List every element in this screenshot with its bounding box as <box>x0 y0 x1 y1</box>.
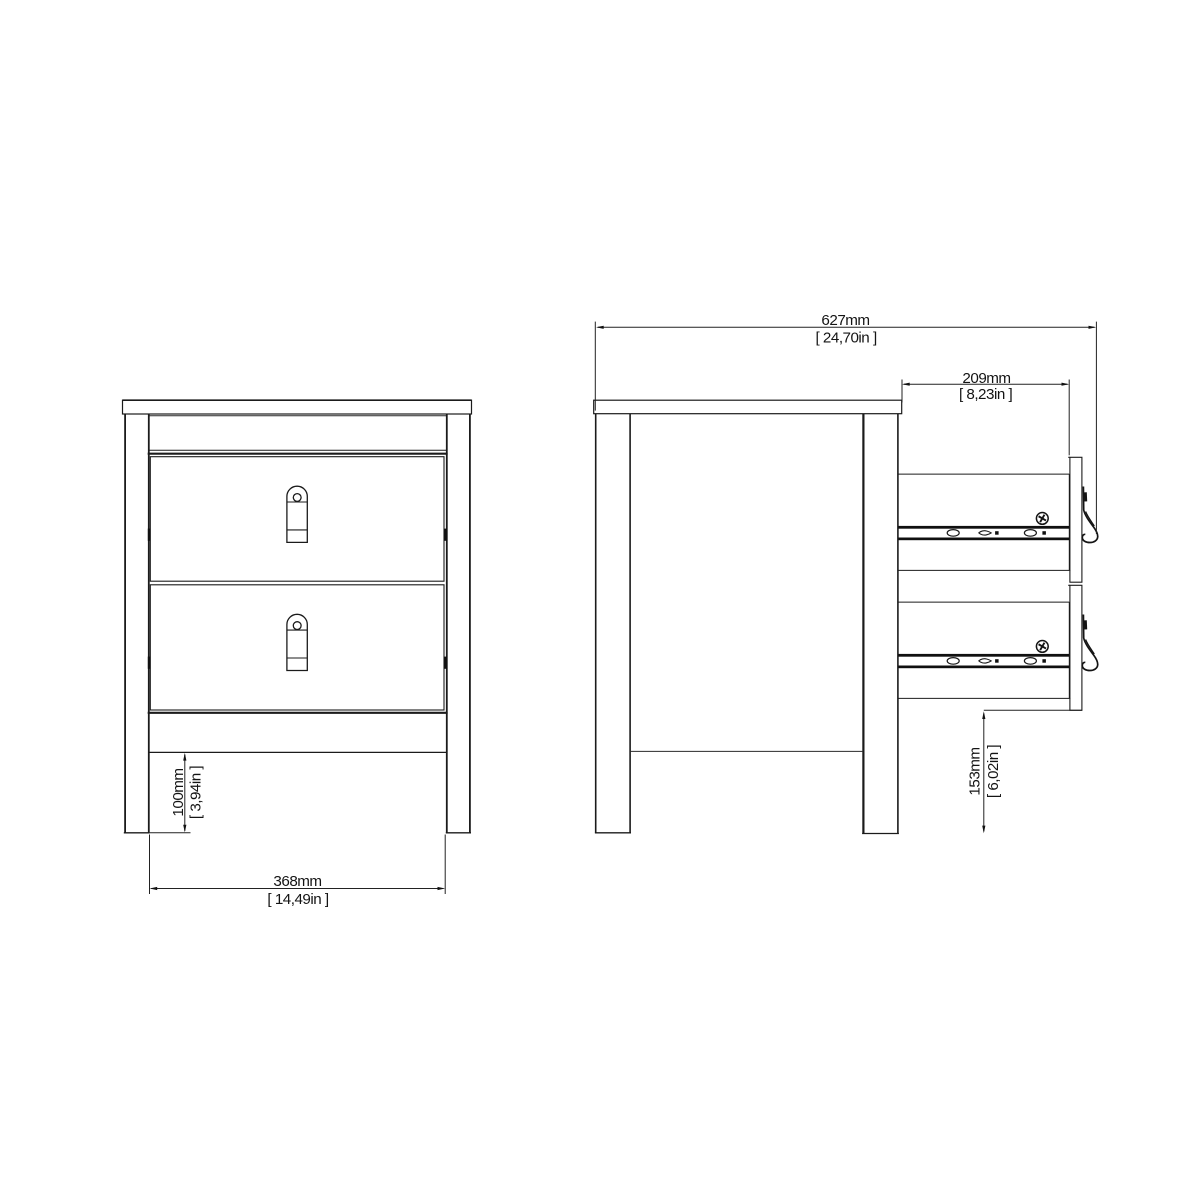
svg-text:[ 6,02in ]: [ 6,02in ] <box>985 745 1002 799</box>
svg-text:368mm: 368mm <box>273 873 321 890</box>
svg-text:[ 3,94in ]: [ 3,94in ] <box>188 766 205 820</box>
svg-text:100mm: 100mm <box>170 768 187 816</box>
svg-text:627mm: 627mm <box>821 312 869 329</box>
svg-text:209mm: 209mm <box>962 370 1010 387</box>
svg-text:[ 24,70in ]: [ 24,70in ] <box>815 330 876 347</box>
svg-text:[ 8,23in ]: [ 8,23in ] <box>959 386 1013 403</box>
svg-text:153mm: 153mm <box>966 747 983 795</box>
svg-text:[ 14,49in ]: [ 14,49in ] <box>267 891 328 908</box>
